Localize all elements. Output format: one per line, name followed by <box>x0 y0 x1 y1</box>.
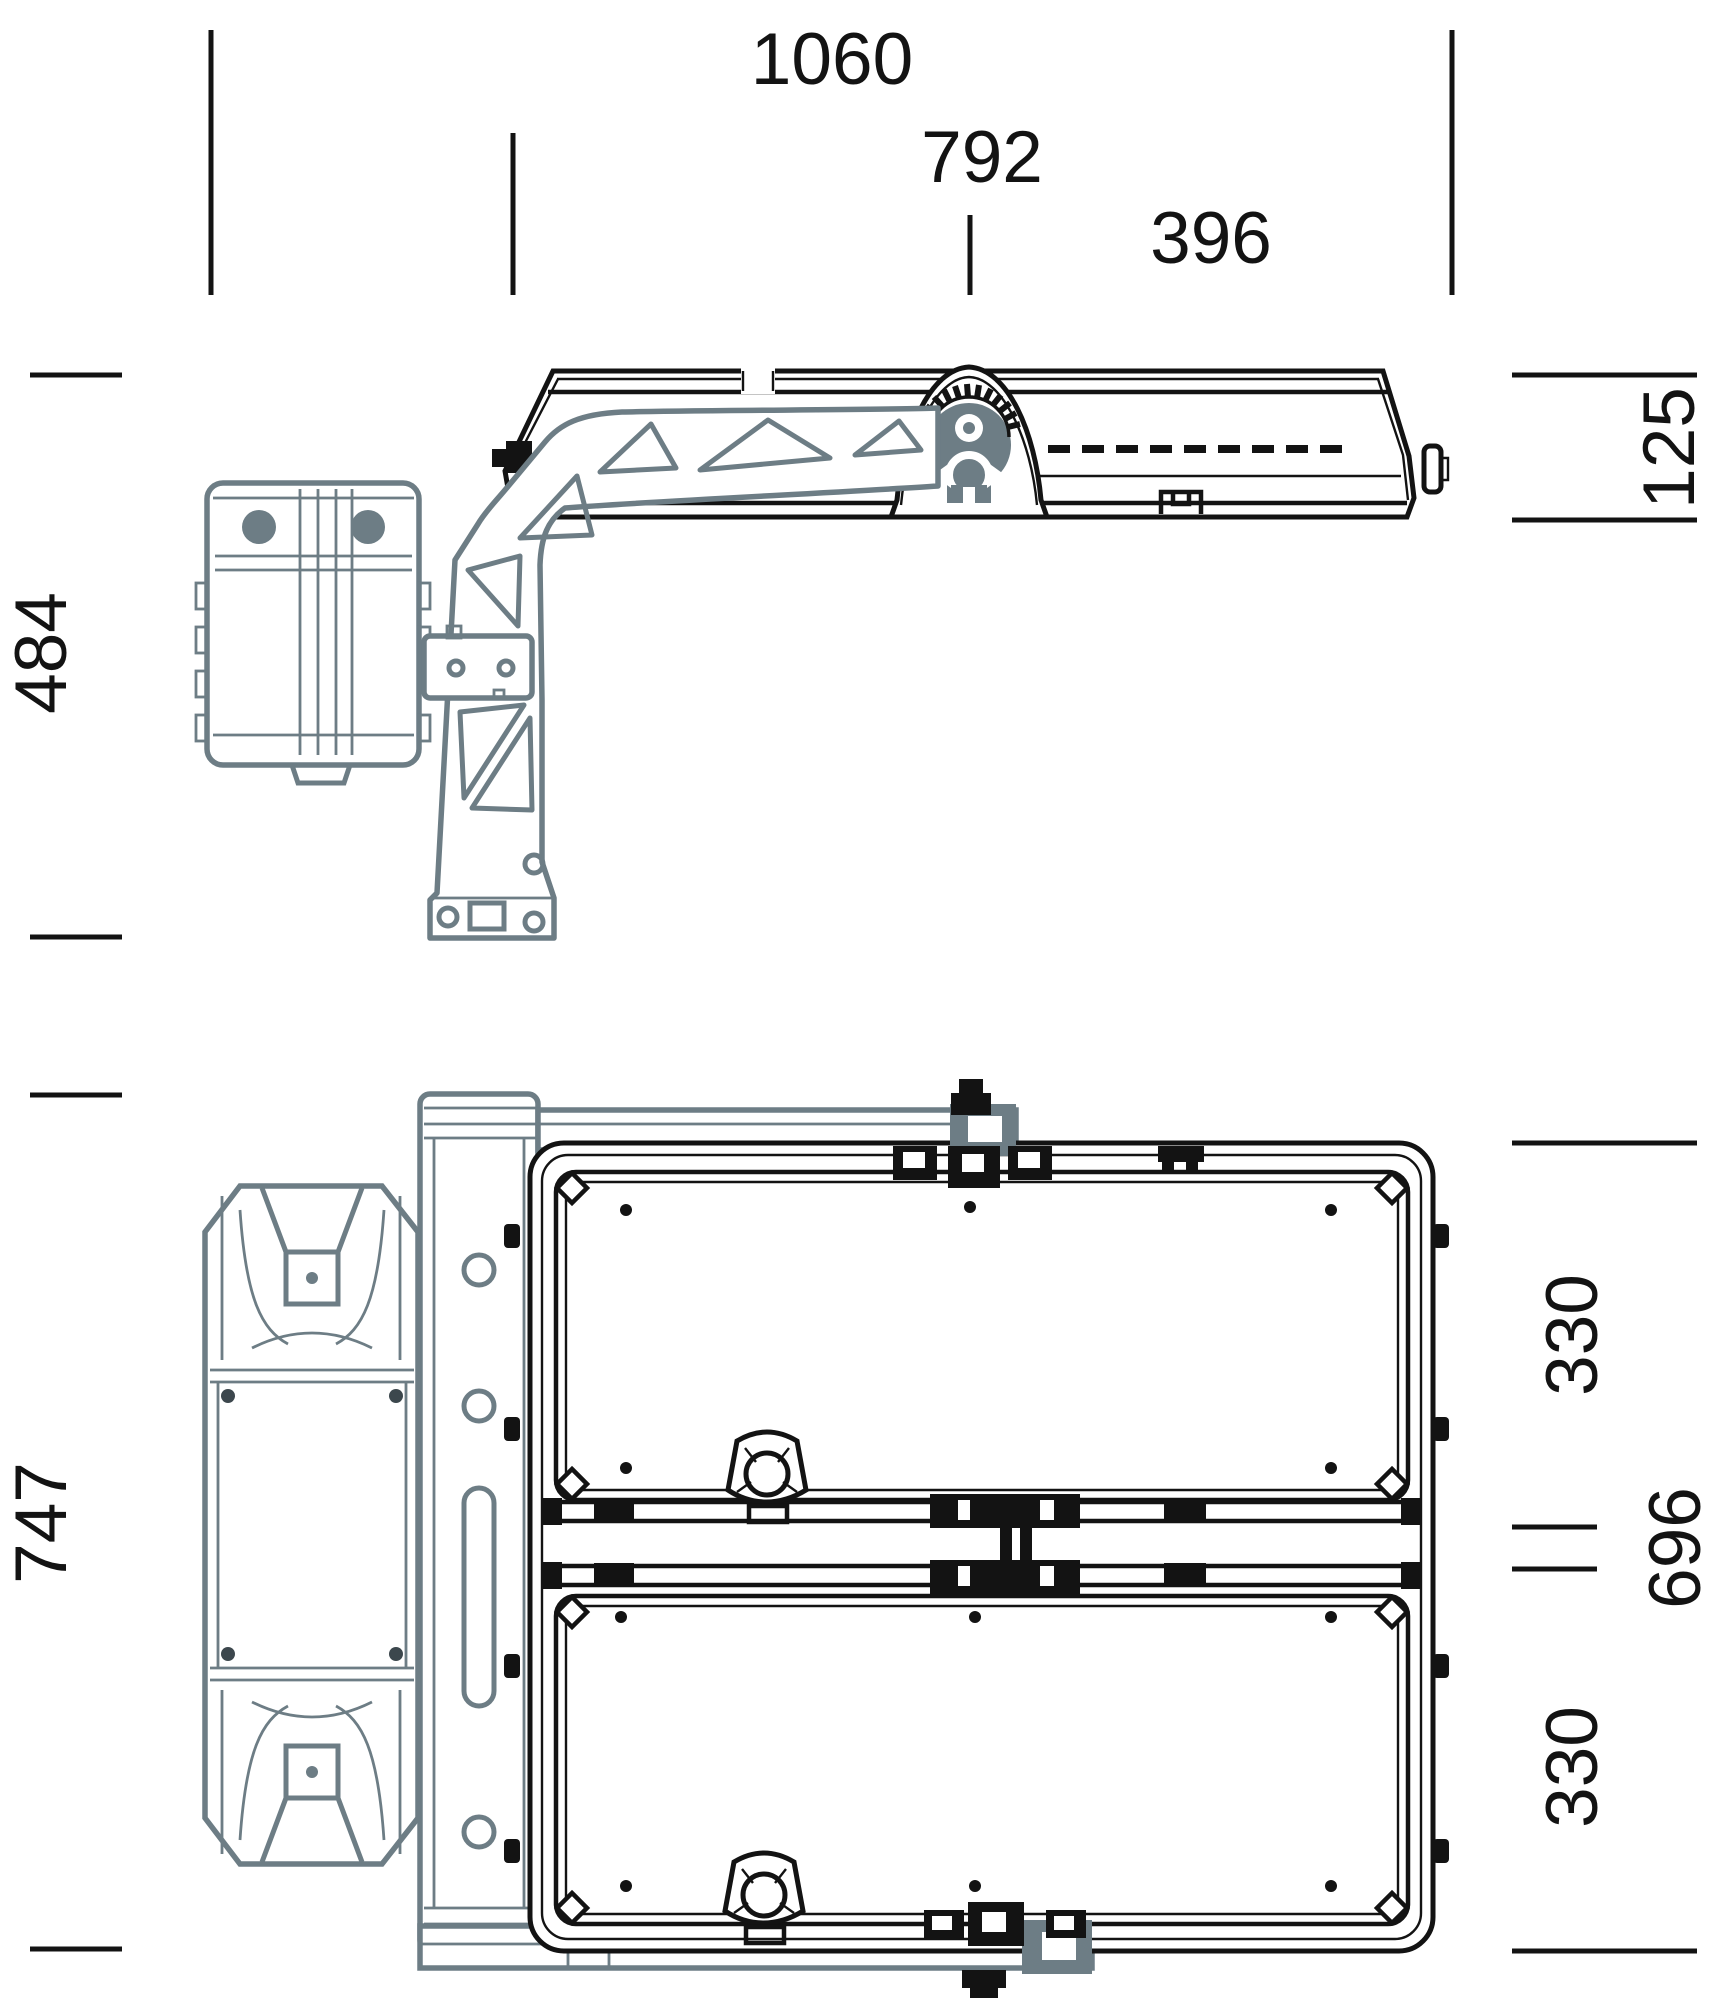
dim-396: 396 <box>1150 198 1272 279</box>
mount-plate-plan <box>408 1094 538 1950</box>
bracket-arm-side <box>424 408 938 938</box>
side-view: 484 125 <box>1 367 1710 938</box>
dim-330-bottom: 330 <box>1532 1706 1613 1828</box>
dim-792: 792 <box>921 117 1043 198</box>
dim-330-top: 330 <box>1532 1274 1613 1396</box>
top-dimensions: 1060 792 396 <box>211 19 1452 295</box>
dim-747: 747 <box>1 1462 82 1584</box>
dim-484: 484 <box>1 592 82 714</box>
motor-plan <box>205 1186 418 1864</box>
pole-clamp-plate <box>424 636 532 698</box>
motor-side <box>196 483 430 783</box>
dim-125: 125 <box>1629 387 1710 509</box>
motor-port-right <box>351 510 385 544</box>
plan-view: 747 330 696 330 <box>1 1079 1714 1998</box>
dim-696: 696 <box>1635 1487 1714 1609</box>
dim-1060: 1060 <box>751 19 913 100</box>
dimension-drawing: 1060 792 396 <box>0 0 1714 2000</box>
fixture-plan <box>504 1143 1449 1951</box>
motor-port-left <box>242 510 276 544</box>
end-latch <box>1424 446 1441 492</box>
drawing-sheet: 1060 792 396 <box>0 0 1714 2000</box>
